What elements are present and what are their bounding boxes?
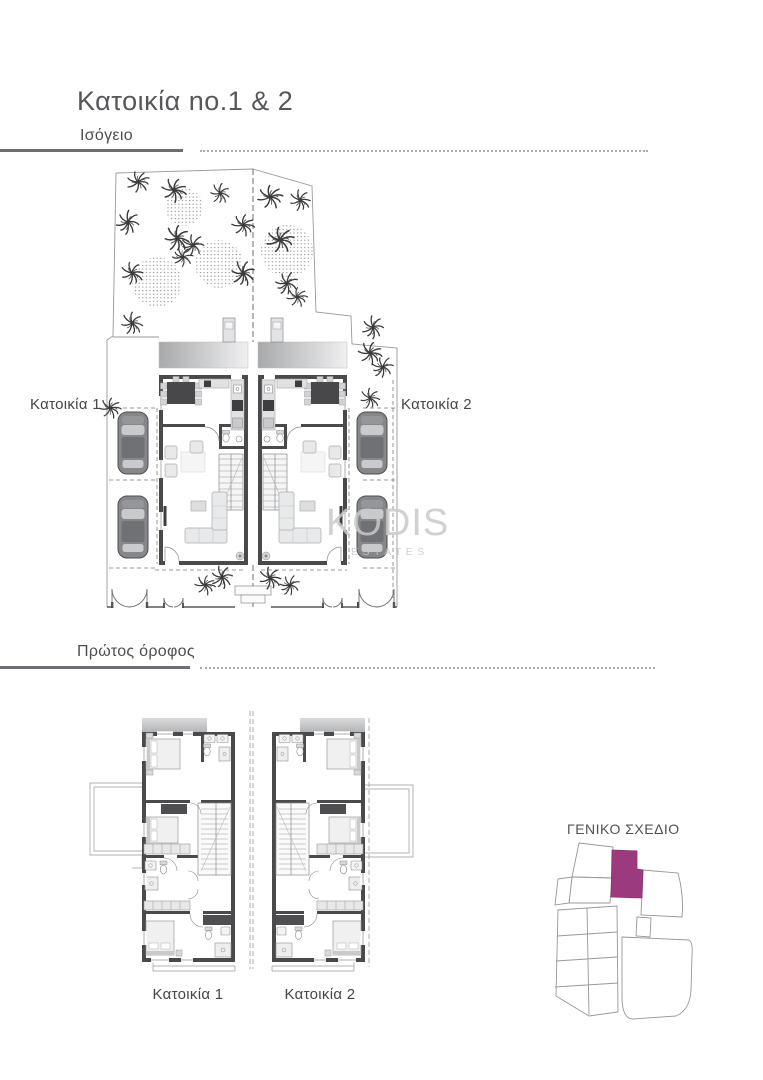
- car-icon: [357, 496, 387, 558]
- car-icon: [118, 496, 148, 558]
- palm-tree-icon: [287, 187, 313, 214]
- section-divider-solid-ground: [0, 149, 183, 152]
- first-floor-label-house1: Κατοικία 1: [138, 986, 238, 1003]
- parking-markings: [109, 380, 395, 598]
- section-heading-ground-floor: Ισόγειο: [80, 127, 133, 145]
- entrance-steps: [235, 586, 271, 603]
- ground-label-house1: Κατοικία 1: [30, 396, 101, 413]
- palm-tree-icon: [119, 310, 145, 337]
- ground-label-house2: Κατοικία 2: [401, 396, 472, 413]
- house-unit-2-first-floor: [272, 731, 366, 962]
- highlighted-plot: [611, 850, 643, 898]
- balcony-right: [365, 785, 413, 857]
- palm-tree-icon: [369, 354, 396, 380]
- house-unit-1: [158, 375, 248, 565]
- section-divider-solid-first: [0, 666, 190, 669]
- first-floor-label-house2: Κατοικία 2: [270, 986, 370, 1003]
- palm-tree-icon: [210, 183, 231, 205]
- section-heading-first-floor: Πρώτος όροφος: [77, 643, 195, 661]
- site-overview-heading: ΓΕΝΙΚΟ ΣΧΕΔΙΟ: [567, 821, 680, 837]
- ground-floor-plan: [95, 160, 425, 625]
- palm-tree-icon: [360, 314, 386, 341]
- roof-band-unit2: [300, 718, 365, 732]
- house-unit-1-first-floor: [141, 731, 235, 962]
- page-title: Κατοικία no.1 & 2: [77, 86, 293, 117]
- house-unit-2: [258, 375, 348, 565]
- palm-tree-icon: [128, 172, 149, 192]
- roof-band-unit1: [142, 718, 207, 732]
- car-icon: [118, 412, 148, 474]
- palm-tree-icon: [358, 386, 382, 411]
- car-icon: [357, 412, 387, 474]
- first-floor-plan: [85, 705, 425, 980]
- plot-boundary: [107, 169, 397, 607]
- palm-tree-icon: [163, 224, 191, 253]
- terrace-edges: [153, 962, 354, 971]
- section-divider-dotted-ground: [200, 150, 648, 152]
- palm-tree-icon: [277, 572, 303, 598]
- site-overview-map: [543, 840, 761, 1045]
- palm-tree-icon: [193, 573, 218, 598]
- balcony-left: [90, 783, 142, 868]
- palm-tree-icon: [113, 208, 142, 238]
- palm-tree-icon: [257, 184, 285, 211]
- section-divider-dotted-first: [200, 667, 655, 669]
- page-canvas: Κατοικία no.1 & 2 Ισόγειο: [0, 0, 763, 1080]
